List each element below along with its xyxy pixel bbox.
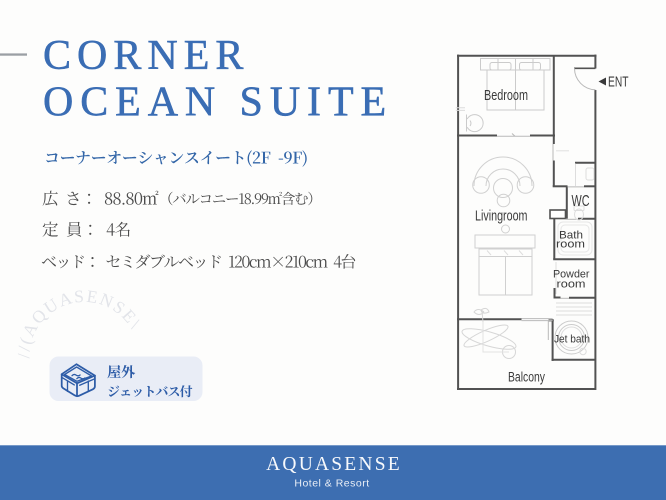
svg-text:Livingroom: Livingroom	[475, 208, 528, 225]
svg-text:room: room	[557, 279, 586, 291]
svg-text:AQUASENSE: AQUASENSE	[266, 454, 402, 475]
svg-text:CORNER: CORNER	[43, 33, 249, 79]
svg-text://(AQUASENSE\: //(AQUASENSE\	[13, 286, 146, 359]
svg-text:Bedroom: Bedroom	[484, 87, 528, 104]
svg-text:Balcony: Balcony	[508, 370, 545, 385]
svg-text:WC: WC	[572, 193, 590, 210]
svg-text:Jet bath: Jet bath	[554, 334, 590, 346]
svg-text:room: room	[556, 239, 585, 251]
svg-text:ENT: ENT	[608, 74, 629, 91]
svg-text:Hotel & Resort: Hotel & Resort	[294, 478, 369, 490]
svg-text:OCEAN SUITE: OCEAN SUITE	[43, 79, 393, 125]
